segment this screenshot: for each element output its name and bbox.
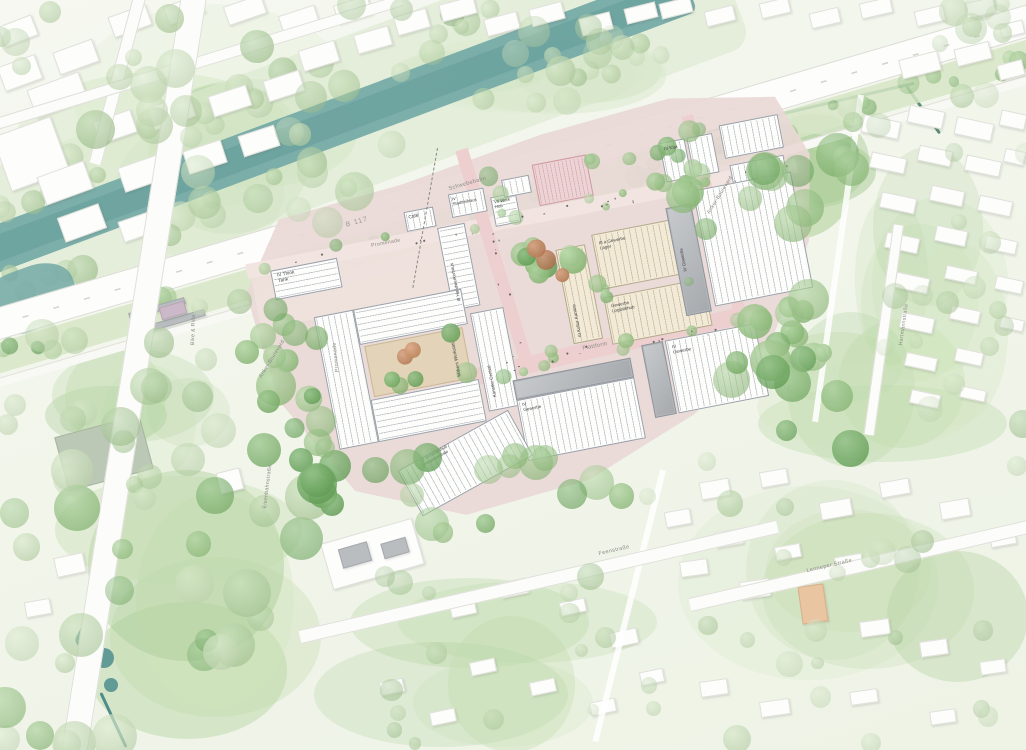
tree (979, 231, 1001, 253)
tree (335, 172, 374, 211)
tree (577, 563, 604, 590)
tree (868, 538, 895, 565)
tree (4, 394, 26, 416)
tree (409, 737, 422, 750)
tree (156, 49, 195, 88)
tree (776, 651, 803, 678)
tree (866, 113, 891, 138)
tree (387, 722, 402, 737)
tree (223, 569, 271, 617)
tree (483, 709, 504, 730)
tree (973, 82, 999, 108)
tree (932, 35, 949, 52)
tree (517, 66, 534, 83)
tree (832, 430, 869, 467)
tree (474, 455, 503, 484)
tree (400, 483, 424, 507)
tree (76, 110, 115, 149)
tree (912, 285, 933, 306)
tree-layer (0, 0, 1026, 750)
tree (247, 433, 281, 467)
tree (544, 47, 561, 64)
tree (810, 686, 832, 708)
tree (894, 546, 920, 572)
tree (575, 644, 588, 657)
tree (583, 39, 613, 69)
tree (55, 653, 75, 673)
tree (455, 19, 470, 34)
tree (105, 576, 134, 605)
tree (740, 632, 755, 647)
tree (125, 49, 142, 66)
tree (951, 214, 967, 230)
tree (1, 28, 29, 56)
tree (587, 704, 599, 716)
tree (0, 498, 29, 528)
tree (186, 531, 211, 556)
tree (945, 143, 963, 161)
tree (776, 498, 794, 516)
tree (559, 603, 579, 623)
tree (980, 337, 999, 356)
tree (362, 457, 388, 483)
tree (181, 155, 215, 189)
tree (950, 84, 974, 108)
tree (639, 488, 656, 505)
tree (89, 167, 106, 184)
tree (155, 4, 184, 33)
tree (390, 705, 406, 721)
tree (235, 340, 260, 365)
tree (196, 477, 233, 514)
tree (141, 372, 172, 403)
tree (60, 406, 86, 432)
tree (26, 721, 54, 749)
tree (1009, 410, 1026, 438)
tree (227, 289, 252, 314)
tree (175, 565, 214, 604)
tree (989, 301, 1007, 319)
tree (337, 0, 366, 20)
tree (888, 630, 903, 645)
tree (775, 549, 792, 566)
tree (297, 157, 328, 188)
tree (137, 464, 162, 489)
tree (476, 514, 495, 533)
tree (0, 725, 20, 750)
tree (53, 463, 87, 497)
tree (518, 16, 549, 47)
tree (101, 407, 140, 446)
tree (978, 706, 998, 726)
tree (805, 619, 827, 641)
tree (861, 733, 881, 750)
tree (13, 533, 41, 561)
tree (300, 463, 333, 496)
tree (257, 390, 280, 413)
tree (391, 63, 409, 81)
label-bike-ride: Bike & Ride (190, 314, 197, 345)
tree (553, 87, 581, 115)
tree (695, 218, 717, 240)
tree (917, 396, 942, 421)
tree (422, 586, 436, 600)
tree (295, 81, 327, 113)
tree (170, 95, 202, 127)
tree (973, 620, 994, 641)
tree (737, 304, 772, 339)
tree (144, 327, 175, 358)
tree (698, 616, 717, 635)
tree (628, 49, 646, 67)
tree (305, 326, 328, 349)
tree (201, 413, 236, 448)
tree (1007, 456, 1026, 476)
tree (133, 487, 156, 510)
tree (936, 291, 959, 314)
tree (575, 14, 602, 41)
tree (876, 339, 894, 357)
tree (5, 626, 39, 660)
tree (59, 613, 103, 657)
tree (52, 730, 81, 750)
tree (289, 123, 312, 146)
tree (243, 184, 273, 214)
tree (698, 452, 717, 471)
tree (532, 445, 558, 471)
tree (12, 57, 30, 75)
tree (726, 351, 749, 374)
tree (426, 642, 447, 663)
tree (723, 725, 751, 750)
tree (0, 414, 18, 435)
tree (240, 30, 274, 64)
tree (25, 319, 58, 352)
tree (195, 348, 217, 370)
tree (106, 64, 132, 90)
tree (171, 443, 204, 476)
tree (1015, 143, 1026, 163)
tree (191, 299, 208, 316)
tree (112, 539, 133, 560)
tree (776, 420, 797, 441)
tree (646, 701, 661, 716)
tree (380, 679, 403, 702)
site-plan-map: IV Think Tank Café III Kita IV Stadtteil… (0, 0, 1026, 750)
tree (375, 566, 396, 587)
tree (188, 186, 220, 218)
tree (286, 197, 311, 222)
tree (774, 205, 811, 242)
tree (560, 584, 578, 602)
tree (312, 207, 343, 238)
tree (419, 40, 444, 65)
tree (748, 153, 780, 185)
tree (909, 334, 923, 348)
tree (0, 687, 26, 728)
tree (821, 380, 853, 412)
tree (994, 316, 1014, 336)
tree (595, 627, 616, 648)
tree (963, 276, 986, 299)
tree (943, 373, 965, 395)
tree (280, 517, 323, 560)
tree (609, 483, 635, 509)
tree (837, 94, 864, 121)
tree (390, 449, 426, 485)
tree (738, 186, 762, 210)
tree (834, 151, 869, 186)
tree (136, 95, 168, 127)
tree (180, 126, 202, 148)
tree (61, 327, 88, 354)
tree (717, 490, 744, 517)
tree (182, 381, 213, 412)
tree (788, 279, 829, 320)
tree (557, 479, 587, 509)
tree (92, 714, 138, 750)
tree (203, 634, 239, 670)
tree (39, 1, 62, 24)
tree (811, 657, 824, 670)
tree (641, 677, 658, 694)
tree (390, 0, 413, 21)
tree (666, 180, 700, 214)
tree (433, 522, 454, 543)
